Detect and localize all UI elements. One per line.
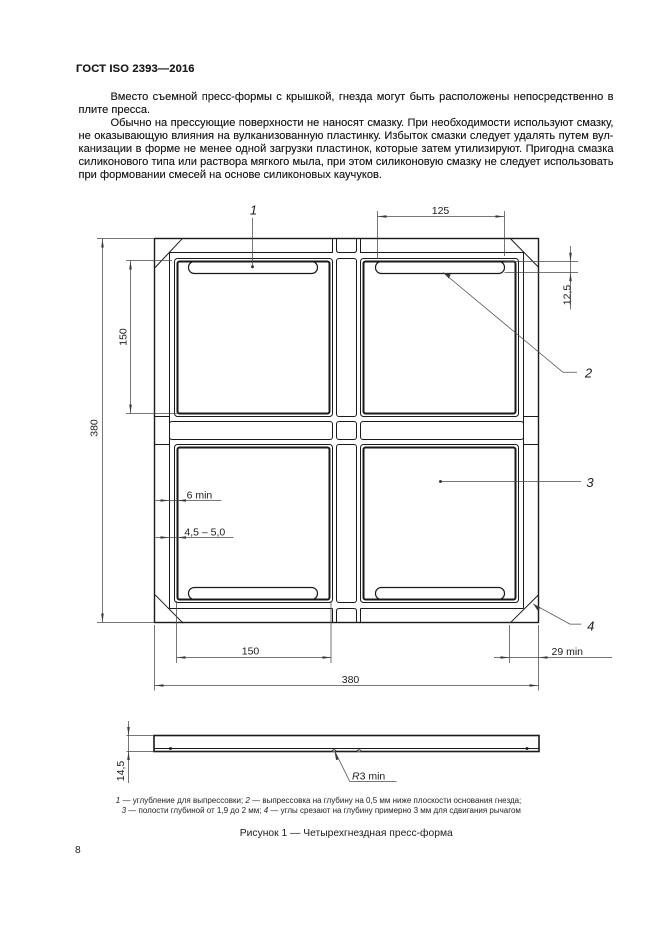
svg-text:1: 1 bbox=[250, 203, 257, 218]
svg-text:12,5: 12,5 bbox=[562, 285, 574, 306]
svg-text:150: 150 bbox=[242, 646, 260, 658]
svg-text:150: 150 bbox=[118, 328, 130, 346]
svg-text:380: 380 bbox=[342, 674, 360, 686]
svg-text:6 min: 6 min bbox=[187, 489, 213, 501]
svg-text:380: 380 bbox=[89, 419, 101, 437]
svg-text:4,5 – 5,0: 4,5 – 5,0 bbox=[184, 527, 225, 539]
svg-text:3: 3 bbox=[586, 475, 594, 490]
svg-text:125: 125 bbox=[432, 205, 450, 217]
svg-text:R3 min: R3 min bbox=[352, 770, 385, 782]
svg-text:14,5: 14,5 bbox=[115, 761, 127, 782]
svg-text:2: 2 bbox=[584, 366, 593, 381]
svg-text:29 min: 29 min bbox=[552, 646, 584, 658]
svg-text:4: 4 bbox=[587, 619, 594, 634]
